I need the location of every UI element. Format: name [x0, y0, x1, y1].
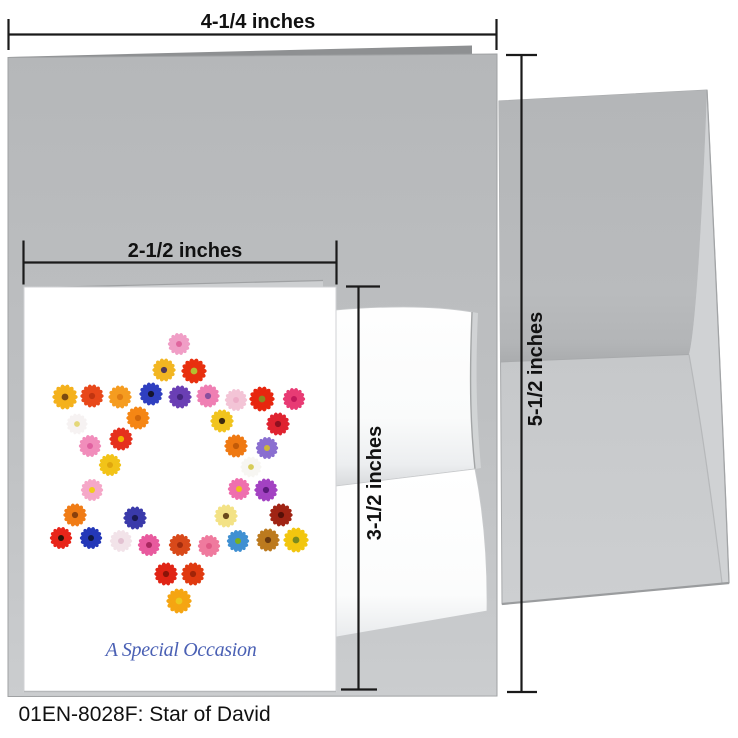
svg-text:A Special Occasion: A Special Occasion	[104, 639, 257, 661]
svg-text:5-1/2 inches: 5-1/2 inches	[525, 312, 547, 427]
svg-text:3-1/2 inches: 3-1/2 inches	[364, 426, 386, 541]
svg-text:01EN-8028F: Star of David: 01EN-8028F: Star of David	[19, 703, 271, 726]
svg-text:2-1/2 inches: 2-1/2 inches	[128, 240, 243, 262]
svg-text:4-1/4 inches: 4-1/4 inches	[201, 11, 316, 33]
